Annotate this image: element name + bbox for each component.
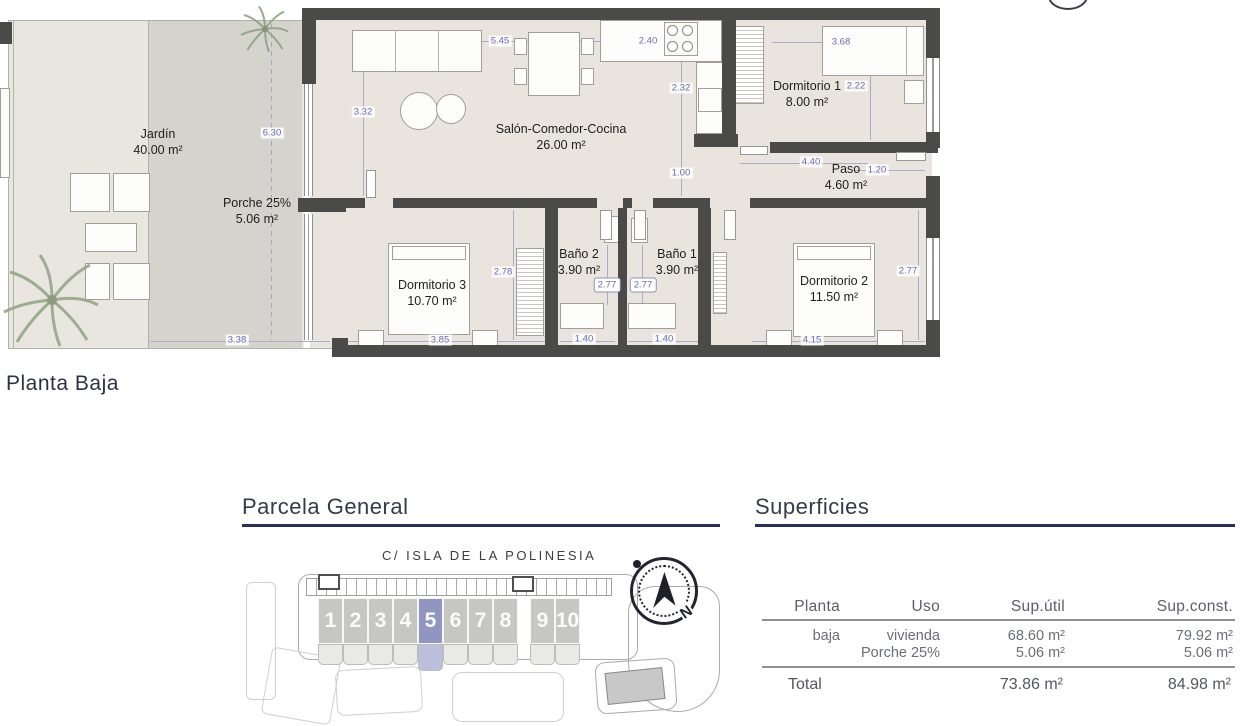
wall [332,198,365,208]
room-label-paso: Paso 4.60 m² [825,161,867,194]
wall [302,8,938,20]
garden-chair [113,173,150,212]
dimension-label: 1.40 [573,334,596,345]
wall [653,198,710,208]
burner-icon [667,41,678,52]
wall [698,208,711,345]
coffee-table [400,92,438,130]
wall [926,320,940,357]
wardrobe [516,248,544,336]
window [926,238,940,320]
burner-icon [682,25,693,36]
porch-shade [148,21,304,348]
room-label-porche: Porche 25% 5.06 m² [223,195,291,228]
oven [698,88,722,112]
chair [581,38,594,55]
plot-cell: 6 [443,598,468,644]
col-header-uso: Uso [845,598,940,616]
patio-row [318,644,580,671]
burner-icon [682,41,693,52]
wall [332,345,940,357]
patio-cell [530,644,555,665]
railing [0,88,10,178]
section-title: Superficies [755,494,869,520]
gate-icon [318,574,340,590]
total-label: Total [788,676,822,694]
door-leaf [600,210,612,240]
dimension-label: 1.20 [866,165,889,176]
cell-sup-const: 5.06 m² [1105,645,1233,661]
patio-cell [555,644,580,665]
room-label-jardin: Jardín 40.00 m² [133,126,182,159]
plot-gap [518,644,530,671]
room-label-dormitorio2: Dormitorio 2 11.50 m² [800,273,868,306]
burner-icon [667,25,678,36]
wall [722,18,736,136]
section-underline [755,524,1235,527]
wall [393,198,545,208]
window [304,84,313,196]
chair [581,68,594,85]
vanity [560,303,604,329]
room-label-dormitorio1: Dormitorio 1 8.00 m² [773,78,841,111]
street-label: C/ ISLA DE LA POLINESIA [382,548,596,563]
plot-cell: 8 [493,598,518,644]
nightstand [358,330,384,346]
dimension-label: 2.78 [492,267,515,278]
road-outline [452,672,564,722]
coffee-table [436,94,466,124]
door-leaf [634,210,646,240]
wall [750,198,928,208]
plot-cell: 9 [530,598,555,644]
door-leaf [896,152,926,161]
dimension-label: 2.32 [670,83,693,94]
patio-cell [393,644,418,665]
section-title: Parcela General [242,494,408,520]
wall [545,208,558,345]
vanity [628,303,676,329]
door-leaf [366,170,376,198]
plot-gap [518,598,530,644]
patio-cell [368,644,393,665]
palm-tree-icon [240,4,290,54]
bed [822,26,924,76]
sofa-divider [438,31,439,71]
dimension-label: 2.77 [897,266,920,277]
wall [694,134,738,147]
plot-cell: 1 [318,598,343,644]
plot-row: 1 2 3 4 5 6 7 8 9 10 [318,598,580,644]
dimension-label: 5.45 [489,36,512,47]
room-label-bano2: Baño 2 3.90 m² [558,246,600,279]
col-header-planta: Planta [760,598,840,616]
garden-chair [70,173,110,212]
cell-planta: baja [760,628,840,644]
wall [926,8,940,58]
dimension-label: 3.38 [226,335,249,346]
garden-table [85,223,137,252]
patio-cell [443,644,468,665]
chair [514,38,527,55]
room-label-salon: Salón-Comedor-Cocina 26.00 m² [496,121,627,154]
wall [623,198,632,208]
patio-cell-highlighted [418,644,443,671]
parking-strip [306,578,612,596]
sofa-divider [395,31,396,71]
dimension-label: 1.40 [653,334,676,345]
dimension-label: 2.22 [845,81,868,92]
dimension-label: 3.32 [352,107,375,118]
plot-cell: 10 [555,598,580,644]
section-underline [242,524,720,527]
pillow [392,246,466,260]
pillow [797,246,871,260]
cell-sup-util: 68.60 m² [955,628,1065,644]
cropped-circle-icon [1048,0,1088,10]
total-sup-const: 84.98 m² [1105,676,1231,694]
plot-cell: 4 [393,598,418,644]
wall [545,198,597,208]
dimension-label: 2.77 [630,278,657,293]
dimension-label: 6.30 [261,128,284,139]
plot-cell: 2 [343,598,368,644]
col-header-sup-util: Sup.útil [955,598,1065,616]
kitchen-counter [600,20,722,62]
cell-sup-util: 5.06 m² [955,645,1065,661]
nightstand [472,330,498,346]
dimension-label: 3.85 [429,335,452,346]
garden-chair [113,263,150,300]
table-rule [762,619,1235,621]
patio-cell [318,644,343,665]
door-leaf [724,210,736,240]
dimension-label: 2.77 [594,278,621,293]
gate-icon [512,576,534,592]
wall [0,22,12,44]
plan-title: Planta Baja [6,372,119,396]
wall [302,8,316,84]
chair [514,68,527,85]
cell-uso: vivienda [845,628,940,644]
window [926,58,940,132]
wardrobe [734,26,764,104]
plot-cell: 3 [368,598,393,644]
patio-cell [343,644,368,665]
cell-sup-const: 79.92 m² [1105,628,1233,644]
wall [926,176,940,238]
dimension-label: 2.40 [637,36,660,47]
wall [618,208,627,345]
dimension-label: 1.00 [670,168,693,179]
pillow-line [906,27,907,75]
window [304,214,313,340]
dining-table [528,32,580,96]
door-leaf [740,146,768,155]
sofa [352,30,482,72]
col-header-sup-const: Sup.const. [1105,598,1233,616]
nightstand [904,80,924,104]
building [604,667,665,705]
cell-uso: Porche 25% [845,645,940,661]
dimension-line [607,245,608,305]
dimension-line [271,24,272,340]
room-label-dormitorio3: Dormitorio 3 10.70 m² [398,277,466,310]
dimension-label: 4.15 [801,335,824,346]
plot-cell-highlighted: 5 [418,598,443,644]
palm-tree-icon [2,250,102,350]
room-label-bano1: Baño 1 3.90 m² [656,246,698,279]
wardrobe [713,252,727,314]
dimension-line [642,245,643,305]
table-rule [762,666,1235,668]
dimension-label: 3.68 [830,37,853,48]
patio-cell [468,644,493,665]
patio-cell [493,644,518,665]
road-outline [335,666,423,716]
plot-cell: 7 [468,598,493,644]
total-sup-util: 73.86 m² [955,676,1063,694]
dimension-label: 4.40 [800,157,823,168]
